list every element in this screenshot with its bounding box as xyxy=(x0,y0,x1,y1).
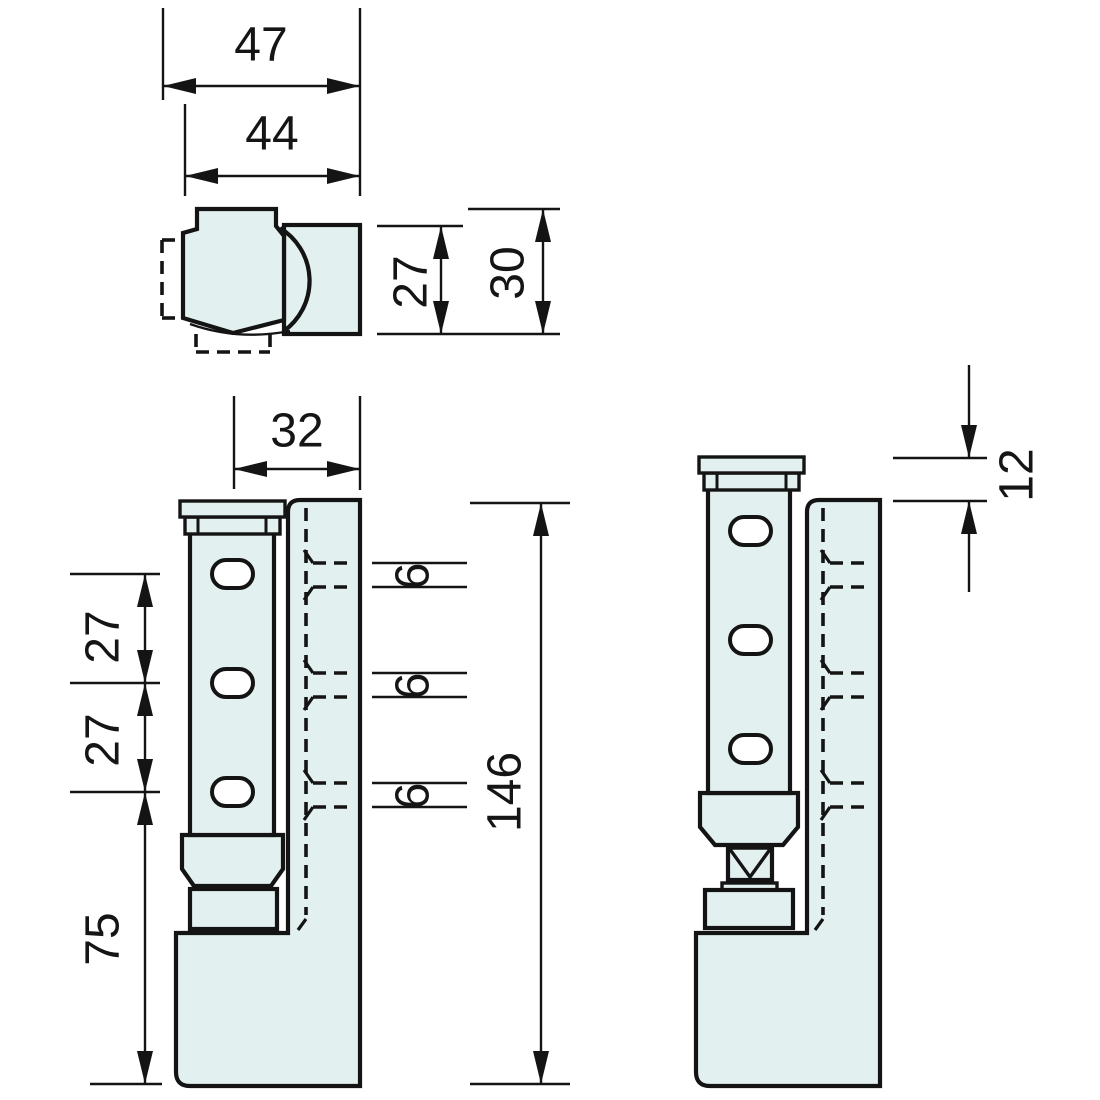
leaf-lower-housing xyxy=(700,793,798,845)
dim-label: 30 xyxy=(482,246,535,299)
leaf-cap-plate xyxy=(699,457,804,473)
arrowhead-up xyxy=(137,683,153,716)
dim-hole-spacing-lower: 27 xyxy=(77,683,154,792)
screw-slot xyxy=(212,560,253,588)
dim-overall-height: 146 xyxy=(470,503,570,1084)
bottom-bracket xyxy=(190,889,277,929)
front-view-closed: 32 27 27 75 xyxy=(70,396,570,1086)
dim-lift-travel: 12 xyxy=(893,365,1044,592)
arrowhead-left xyxy=(185,168,218,184)
screw-slot xyxy=(730,517,771,545)
dim-label: 12 xyxy=(991,448,1044,501)
top-leaf-body xyxy=(183,209,284,333)
screw-slot xyxy=(212,669,253,697)
dim-lower-section-height: 75 xyxy=(77,792,154,1084)
dim-label: 27 xyxy=(77,610,130,663)
arrowhead-left xyxy=(163,78,196,94)
top-view: 47 44 27 30 xyxy=(162,8,560,352)
drawing-canvas: 47 44 27 30 xyxy=(0,0,1100,1100)
dim-label: 75 xyxy=(77,912,130,965)
arrowhead-left xyxy=(234,461,267,477)
screw-slot xyxy=(730,735,771,763)
dim-axis-to-frame-edge: 32 xyxy=(234,396,360,490)
dim-overall-depth: 30 xyxy=(468,209,560,334)
arrowhead-down xyxy=(137,759,153,792)
arrowhead-up xyxy=(137,792,153,825)
dim-label: 47 xyxy=(234,19,287,72)
hinge-drawing: 47 44 27 30 xyxy=(0,0,1100,1100)
arrowhead-right xyxy=(327,168,360,184)
arrowhead-down xyxy=(137,1051,153,1084)
front-view-lifted: 12 xyxy=(696,365,1044,1086)
dim-slot-height-3: 6 xyxy=(372,783,467,810)
dim-slot-height-1: 6 xyxy=(372,563,467,590)
dim-label: 6 xyxy=(387,563,440,590)
dim-leaf-width: 44 xyxy=(185,104,360,196)
arrowhead-down xyxy=(137,650,153,683)
arrowhead-right xyxy=(327,78,360,94)
arrowhead-right xyxy=(327,461,360,477)
arrowhead-up xyxy=(433,226,449,259)
dim-label: 27 xyxy=(77,713,130,766)
dim-label: 146 xyxy=(479,752,532,832)
dim-label: 27 xyxy=(385,255,438,308)
dim-label: 6 xyxy=(387,673,440,700)
arrowhead-up xyxy=(535,209,551,242)
dim-label: 6 xyxy=(387,783,440,810)
arrowhead-up xyxy=(961,501,977,534)
dim-slot-height-2: 6 xyxy=(372,673,467,700)
bottom-bracket xyxy=(705,890,793,928)
arrowhead-up xyxy=(533,503,549,536)
arrowhead-down xyxy=(533,1051,549,1084)
screw-slot xyxy=(212,778,253,806)
leaf-cap-plate xyxy=(180,501,285,517)
arrowhead-down xyxy=(961,425,977,458)
dim-label: 44 xyxy=(245,108,298,161)
dim-hole-spacing-upper: 27 xyxy=(77,574,154,683)
dim-overall-width: 47 xyxy=(163,8,360,196)
dim-label: 32 xyxy=(270,405,323,458)
arrowhead-down xyxy=(535,301,551,334)
screw-slot xyxy=(730,626,771,654)
arrowhead-up xyxy=(137,574,153,607)
leaf-lower-housing xyxy=(182,835,283,886)
